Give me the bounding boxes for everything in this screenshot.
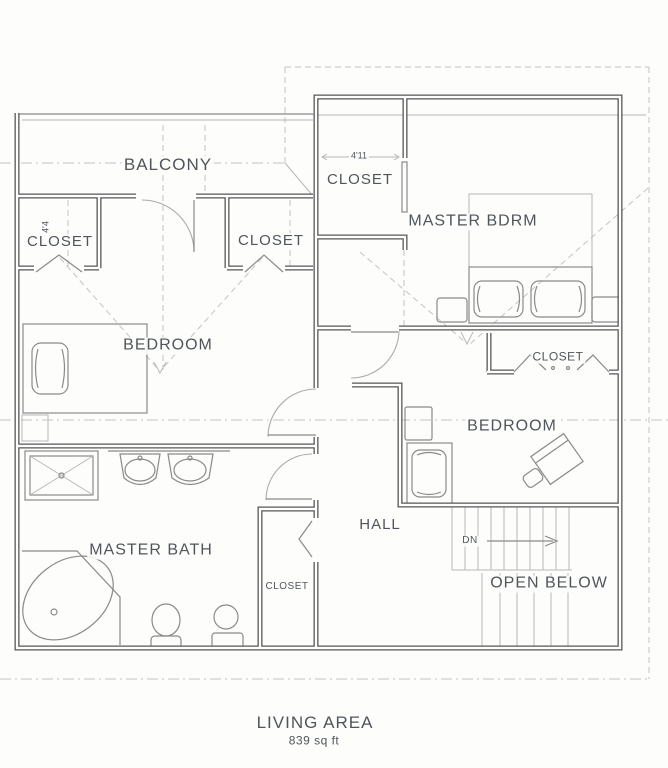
floor-plan-drawing [0,0,668,768]
bedroom-left-door [268,389,316,437]
closet-left2-bifold [245,255,283,272]
dimension-master-closet: 4'11 [349,151,369,160]
living-area-title: LIVING AREA [255,714,376,732]
closet-hall-label: CLOSET [263,582,310,593]
bed-right-bedroom [407,443,452,504]
stairs-down-arrow [487,536,557,546]
room-label-master-bedroom: MASTER BDRM [406,214,539,231]
room-label-hall: HALL [357,517,403,533]
open-below-label: OPEN BELOW [488,576,610,593]
closet-left-bifold [36,255,82,272]
nightstand-right-bedroom [405,407,432,440]
floor-plan: BALCONY CLOSET 4'4 CLOSET CLOSET 4'11 MA… [0,0,668,768]
master-closet-slider-door [402,162,407,212]
vanity-double-sink [108,451,230,485]
balcony-door [142,200,194,252]
closet-left-label: CLOSET [25,234,95,250]
closet-bedroom-label: CLOSET [530,351,585,364]
hall-closet-bifold [299,521,312,557]
room-label-bedroom-left: BEDROOM [121,338,215,355]
dimension-left-closet: 4'4 [41,219,50,235]
master-bedroom-door [351,331,399,378]
room-label-master-bath: MASTER BATH [87,543,215,560]
closet-master-label: CLOSET [325,172,395,188]
stairs-dn-label: DN [460,536,479,547]
desk [531,434,583,485]
shower [25,451,98,500]
nightstand-master-left [437,298,467,322]
room-label-bedroom-right: BEDROOM [465,419,559,436]
master-bath-door [266,454,312,500]
closet-left2-label: CLOSET [236,233,306,249]
nightstand-master-right [592,297,620,322]
balcony-railing [17,114,313,120]
room-label-balcony: BALCONY [122,156,214,174]
living-area-value: 839 sq ft [287,735,342,748]
toilet [151,604,181,649]
pedestal-sink [212,605,243,648]
